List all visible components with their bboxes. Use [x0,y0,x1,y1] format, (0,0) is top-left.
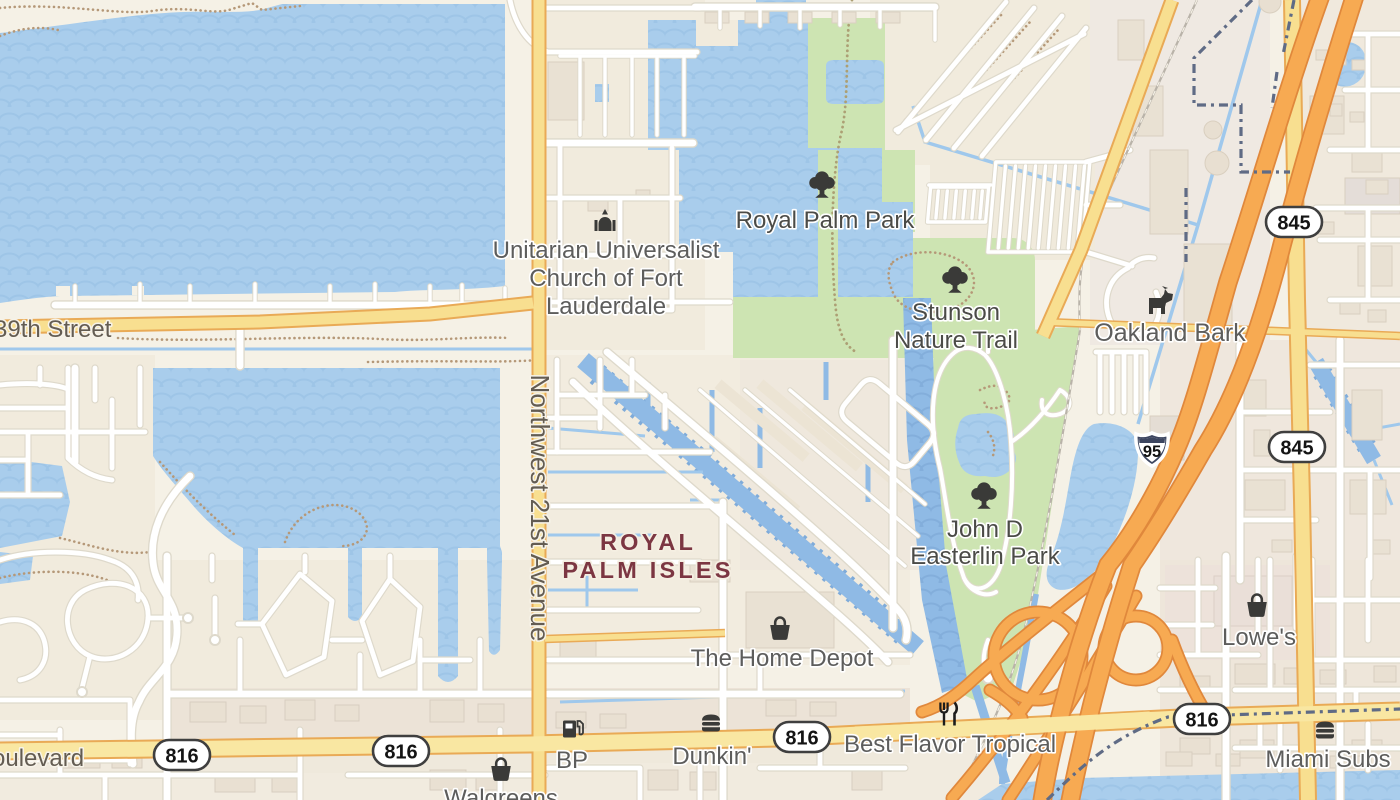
svg-text:Easterlin Park: Easterlin Park [910,543,1060,570]
svg-text:Unitarian Universalist: Unitarian Universalist [493,237,720,264]
svg-text:Royal Palm Park: Royal Palm Park [736,207,916,234]
svg-text:816: 816 [165,746,198,768]
svg-text:816: 816 [785,728,818,750]
svg-text:Dunkin': Dunkin' [672,743,751,770]
svg-text:845: 845 [1277,213,1310,235]
svg-text:BP: BP [556,747,588,774]
svg-text:Miami Subs: Miami Subs [1265,746,1390,773]
svg-text:PALM ISLES: PALM ISLES [562,557,733,583]
svg-text:oulevard: oulevard [0,745,84,772]
svg-text:Walgreens: Walgreens [444,785,558,800]
svg-text:39th Street: 39th Street [0,316,112,343]
svg-text:816: 816 [1185,710,1218,732]
svg-text:Best Flavor Tropical: Best Flavor Tropical [844,731,1056,758]
svg-text:Nature Trail: Nature Trail [894,327,1018,354]
svg-text:Northwest 21st Avenue: Northwest 21st Avenue [525,375,555,642]
svg-text:The Home Depot: The Home Depot [691,645,874,672]
svg-text:Stunson: Stunson [912,299,1000,326]
svg-text:Lauderdale: Lauderdale [546,293,666,320]
svg-text:Lowe's: Lowe's [1222,624,1296,651]
svg-text:816: 816 [384,742,417,764]
svg-text:95: 95 [1143,443,1161,461]
svg-text:John D: John D [947,516,1023,543]
svg-text:ROYAL: ROYAL [600,529,696,555]
svg-text:Church of Fort: Church of Fort [529,265,683,292]
svg-text:845: 845 [1280,438,1313,460]
svg-text:Oakland Bark: Oakland Bark [1094,319,1246,347]
